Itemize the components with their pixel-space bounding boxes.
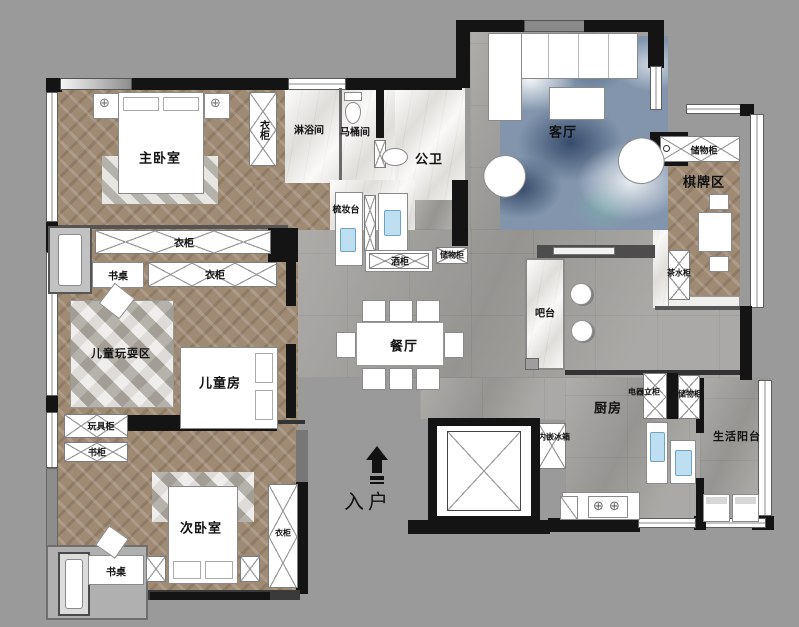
label-desk: 书桌 xyxy=(106,564,126,579)
wall xyxy=(286,230,296,306)
label-utility-balcony: 生活阳台 xyxy=(713,428,761,444)
label-children-room: 儿童房 xyxy=(199,373,241,392)
label-public-bathroom: 公卫 xyxy=(415,149,443,168)
entry-arrow-icon xyxy=(366,446,388,486)
label-appliance-cabinet: 电器立柜 xyxy=(628,387,660,398)
dining-chair xyxy=(389,368,413,390)
elevator-shaft xyxy=(428,418,540,524)
wall xyxy=(46,396,58,412)
dining-chair xyxy=(362,368,386,390)
master-bed xyxy=(118,92,204,194)
wall xyxy=(286,344,296,418)
chess-chair xyxy=(709,256,729,272)
wall xyxy=(296,430,308,482)
bar-stool xyxy=(570,283,592,305)
dining-chair xyxy=(416,368,440,390)
stove: ⊕⊕ xyxy=(588,496,628,518)
entry-hall-floor xyxy=(420,378,565,420)
vanity-cabinet xyxy=(364,195,376,251)
built-in-fridge xyxy=(538,423,566,469)
label-built-in-fridge: 内嵌冰箱 xyxy=(538,432,570,443)
label-toy-cabinet: 玩具柜 xyxy=(87,420,114,433)
floor-plan: ⊕ ⊕ ⊕⊕ xyxy=(0,0,799,627)
nightstand xyxy=(240,556,260,582)
label-living-room: 客厅 xyxy=(549,122,577,141)
dining-chair xyxy=(444,332,464,358)
nightstand xyxy=(146,556,166,582)
toilet-tank xyxy=(344,92,362,101)
label-desk: 书桌 xyxy=(108,268,128,283)
bar-base xyxy=(525,358,539,370)
balcony-sink xyxy=(675,450,692,476)
window xyxy=(46,92,58,222)
nightstand: ⊕ xyxy=(93,93,119,119)
chess-table xyxy=(698,212,732,252)
window xyxy=(758,380,772,516)
wall xyxy=(132,78,290,90)
label-play-area: 儿童玩耍区 xyxy=(91,345,151,361)
label-dining-room: 餐厅 xyxy=(390,336,418,355)
window xyxy=(750,114,764,308)
label-kitchen: 厨房 xyxy=(594,398,622,417)
wall xyxy=(548,518,640,532)
label-second-bedroom: 次卧室 xyxy=(180,518,222,537)
bar-shelf xyxy=(553,247,615,255)
wall xyxy=(655,306,740,310)
window xyxy=(60,78,132,90)
wall xyxy=(277,420,305,424)
appliance xyxy=(65,559,83,609)
wall xyxy=(740,306,752,380)
corner-unit xyxy=(560,496,578,520)
label-tea-cabinet: 茶水柜 xyxy=(667,268,691,279)
label-storage-cabinet: 储物柜 xyxy=(678,389,702,400)
vanity-sink xyxy=(384,210,401,236)
label-shower-room: 淋浴间 xyxy=(294,122,324,137)
dining-chair xyxy=(389,300,413,322)
door-knob-icon xyxy=(663,145,670,152)
label-chess-area: 棋牌区 xyxy=(683,172,725,191)
dining-chair xyxy=(362,300,386,322)
label-wardrobe: 衣柜 xyxy=(256,120,271,140)
wall xyxy=(524,20,586,32)
wall xyxy=(648,20,664,68)
label-entry: 入户 xyxy=(344,486,392,515)
label-bar: 吧台 xyxy=(535,305,555,320)
window xyxy=(638,518,696,528)
bar-stool xyxy=(571,320,593,342)
label-toilet-room: 马桶间 xyxy=(340,124,370,139)
wall xyxy=(456,20,526,32)
label-wardrobe: 衣柜 xyxy=(174,235,194,250)
label-storage-cabinet: 储物柜 xyxy=(440,250,464,261)
wall xyxy=(452,180,468,246)
wall xyxy=(376,88,384,138)
wall xyxy=(346,78,462,90)
window xyxy=(650,66,662,110)
washer xyxy=(703,494,730,522)
label-master-bedroom: 主卧室 xyxy=(139,148,181,167)
wall xyxy=(150,592,270,600)
vanity-sink xyxy=(340,228,356,252)
chess-chair xyxy=(709,194,729,210)
window xyxy=(288,78,346,90)
label-vanity: 梳妆台 xyxy=(332,203,359,216)
label-bookcase: 书柜 xyxy=(88,446,106,459)
dining-chair xyxy=(416,300,440,322)
dining-chair xyxy=(336,332,356,358)
coffee-table xyxy=(549,87,605,120)
bath-sink xyxy=(382,148,408,166)
washer xyxy=(732,494,759,522)
kitchen-sink xyxy=(650,432,665,462)
nightstand: ⊕ xyxy=(204,93,230,119)
wall xyxy=(667,373,678,419)
label-wine-cabinet: 酒柜 xyxy=(391,255,409,268)
label-wardrobe: 衣柜 xyxy=(275,528,291,539)
label-wardrobe: 衣柜 xyxy=(205,267,225,282)
window xyxy=(46,412,58,468)
sofa-chaise xyxy=(488,33,522,121)
label-storage-cabinet: 储物柜 xyxy=(690,144,717,157)
appliance xyxy=(58,234,82,286)
